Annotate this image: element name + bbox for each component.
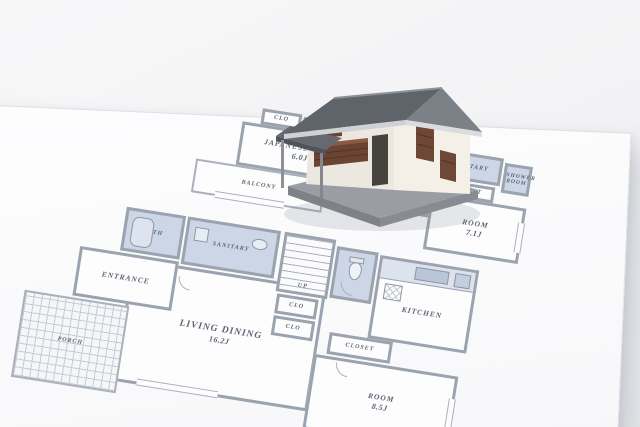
balcony-window [214,191,284,209]
label-up: UP [279,280,326,294]
wc-door-arc [339,281,354,296]
label-clo: CLO [278,300,315,312]
room-porch: PORCH [11,290,129,393]
carport-post-left [281,140,284,188]
room-kitchen: KITCHEN [367,255,479,354]
label-porch: PORCH [19,330,121,353]
label-entrance: ENTRANCE [79,267,173,290]
shutter-right-lower [440,150,456,182]
room-shower: SHOWER ROOM [501,163,533,197]
label-room-85: ROOM 8.5J [310,383,451,422]
label-clo: CLO [275,322,312,334]
room-wc [329,246,379,304]
staircase: UP [276,232,337,299]
front-door-window [372,134,388,186]
room-bath: BATH [120,207,186,260]
room-85-door-arc [334,362,349,377]
carport-post-right [320,153,323,199]
house-model [276,74,494,238]
kitchen-hatch-box [383,283,403,302]
label-kitchen: KITCHEN [375,302,469,325]
kitchen-stove [453,273,471,289]
toilet [347,261,363,281]
washer [193,227,209,243]
label-closet-1f: CLOSET [331,340,389,356]
room-85: ROOM 8.5J [302,354,458,427]
bathtub [129,216,155,249]
label-shower-room: SHOWER ROOM [505,172,529,188]
photo-scene: CLO CLO JAPANESE ROOM 6.0J BALCONY SANIT… [0,0,640,427]
living-window [136,378,218,398]
